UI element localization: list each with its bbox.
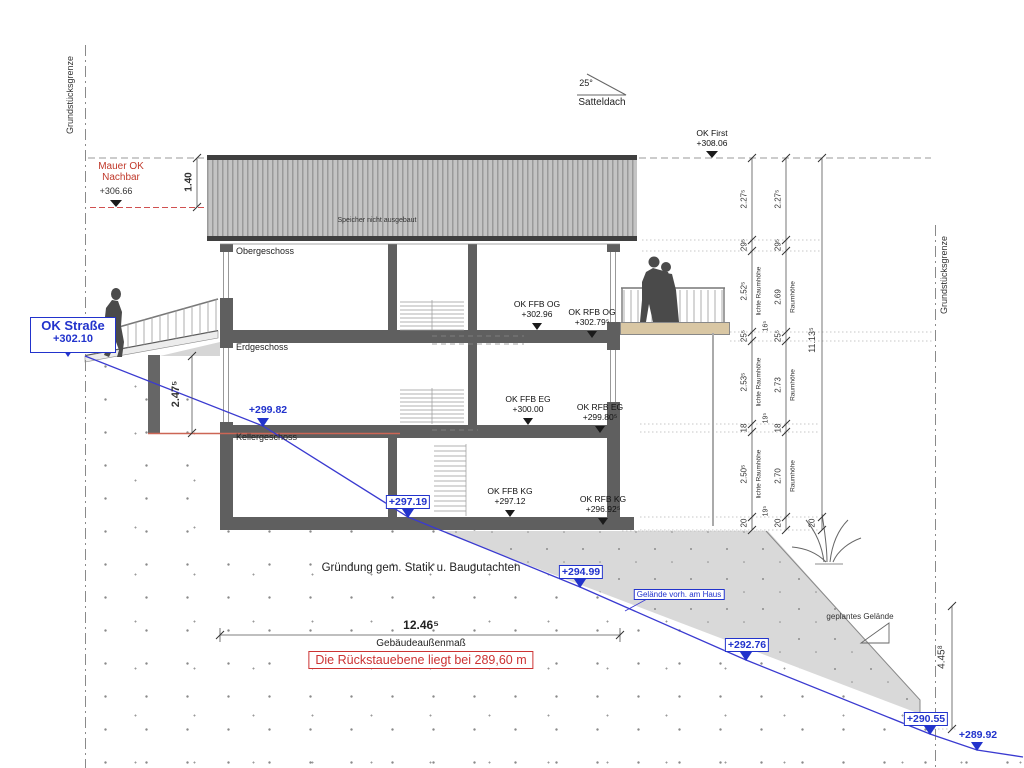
dim-chain-between-value: 16⁵	[763, 321, 770, 332]
level-mark-rfb-og: OK RFB OG+302.79⁵	[568, 307, 615, 327]
room-height-label: Raumhöhe	[790, 369, 797, 401]
total-height-dim: 11.13⁵	[807, 327, 817, 353]
terrain-existing-label: Gelände vorh. am Haus	[634, 589, 725, 600]
foundation-note: Gründung gem. Statik u. Baugutachten	[322, 562, 521, 574]
dim-chain-inner-value: 29⁵	[740, 239, 749, 251]
dim-chain-between-value: 19⁵	[763, 413, 770, 424]
level-mark-ffb-eg: OK FFB EG+300.00	[505, 394, 550, 414]
floor-label-og: Obergeschoss	[236, 246, 294, 256]
room-height-label: lichte Raumhöhe	[756, 267, 763, 316]
ok-first-marker: OK First +308.06	[696, 128, 727, 148]
dim-chain-inner-value: 2.27⁵	[740, 190, 749, 209]
room-height-label: Raumhöhe	[790, 281, 797, 313]
terrain-planned-label: geplantes Gelände	[826, 612, 893, 621]
stair-headroom-dashed	[432, 336, 524, 430]
dim-chain-inner-value: 25⁵	[740, 330, 749, 342]
dim-chain-total-bottom: 20	[808, 519, 817, 528]
roof-type-label: Satteldach	[578, 97, 625, 108]
level-mark-rfb-kg: OK RFB KG+296.92⁵	[580, 494, 626, 514]
dim-chain-between-value: 19⁵	[763, 506, 770, 517]
dim-chain-outer-value: 29⁵	[774, 239, 783, 251]
terrain-elevation-mark: +289.92	[959, 729, 997, 741]
dim-chain-outer-value: 2.70	[774, 468, 783, 484]
slope-height-dim: 4.45⁸	[937, 645, 948, 669]
stairs	[400, 300, 466, 516]
dim-chain-outer-value: 2.69	[774, 289, 783, 305]
terrain-elevation-mark: +297.19	[386, 495, 430, 509]
dim-chain-inner-value: 2.53⁵	[740, 373, 749, 392]
floor-label-kg: Kellergeschoss	[236, 432, 297, 442]
neighbor-wall-elevation: +306.66	[100, 186, 133, 196]
building-width-label: Gebäudeaußenmaß	[376, 638, 466, 649]
dim-chain-outer-value: 25⁵	[774, 330, 783, 342]
floor-label-eg: Erdgeschoss	[236, 342, 288, 352]
level-mark-ffb-og: OK FFB OG+302.96	[514, 299, 560, 319]
planned-terrain-symbol	[861, 623, 889, 643]
dim-chain-inner-value: 18	[740, 424, 749, 433]
boundary-right-label: Grundstücksgrenze	[939, 236, 949, 314]
terrain-elevation-mark: +299.82	[249, 404, 287, 416]
attic-note: Speicher nicht ausgebaut	[338, 217, 417, 224]
dim-chain-outer-value: 20	[774, 519, 783, 528]
dim-chain-inner-value: 20	[740, 519, 749, 528]
neighbor-wall-label-1: Mauer OK	[98, 161, 144, 172]
couple-on-balcony-icon	[640, 257, 679, 323]
terrain-elevation-mark: +290.55	[904, 712, 948, 726]
roof-height-dim: 1.40	[184, 172, 195, 191]
room-height-label: Raumhöhe	[790, 460, 797, 492]
dim-chain-inner-value: 2.50⁵	[740, 465, 749, 484]
dim-chain-outer-value: 18	[774, 424, 783, 433]
room-height-label: lichte Raumhöhe	[756, 450, 763, 499]
dim-chain-inner-value: 2.52⁵	[740, 282, 749, 301]
terrain-elevation-mark: +292.76	[725, 638, 769, 652]
terrain-elevation-mark: +294.99	[559, 565, 603, 579]
dim-chain-outer-value: 2.73	[774, 377, 783, 393]
backflow-note: Die Rückstauebene liegt bei 289,60 m	[308, 651, 533, 669]
neighbor-wall-label-2: Nachbar	[102, 172, 140, 183]
grass-icon	[792, 514, 861, 564]
level-mark-rfb-eg: OK RFB EG+299.80⁵	[577, 402, 623, 422]
boundary-left-label: Grundstücksgrenze	[65, 56, 75, 134]
roof-pitch-label: 25°	[579, 78, 593, 88]
street-level-marker: OK Straße +302.10	[30, 317, 116, 353]
building-width-value: 12.46⁵	[403, 618, 439, 632]
building-section-drawing: Grundstücksgrenze Grundstücksgrenze 25° …	[0, 0, 1024, 768]
wall-height-dim: 2.47⁵	[170, 381, 182, 408]
level-mark-ffb-kg: OK FFB KG+297.12	[487, 486, 532, 506]
room-height-label: lichte Raumhöhe	[756, 358, 763, 407]
dim-chain-outer-value: 2.27⁵	[774, 190, 783, 209]
